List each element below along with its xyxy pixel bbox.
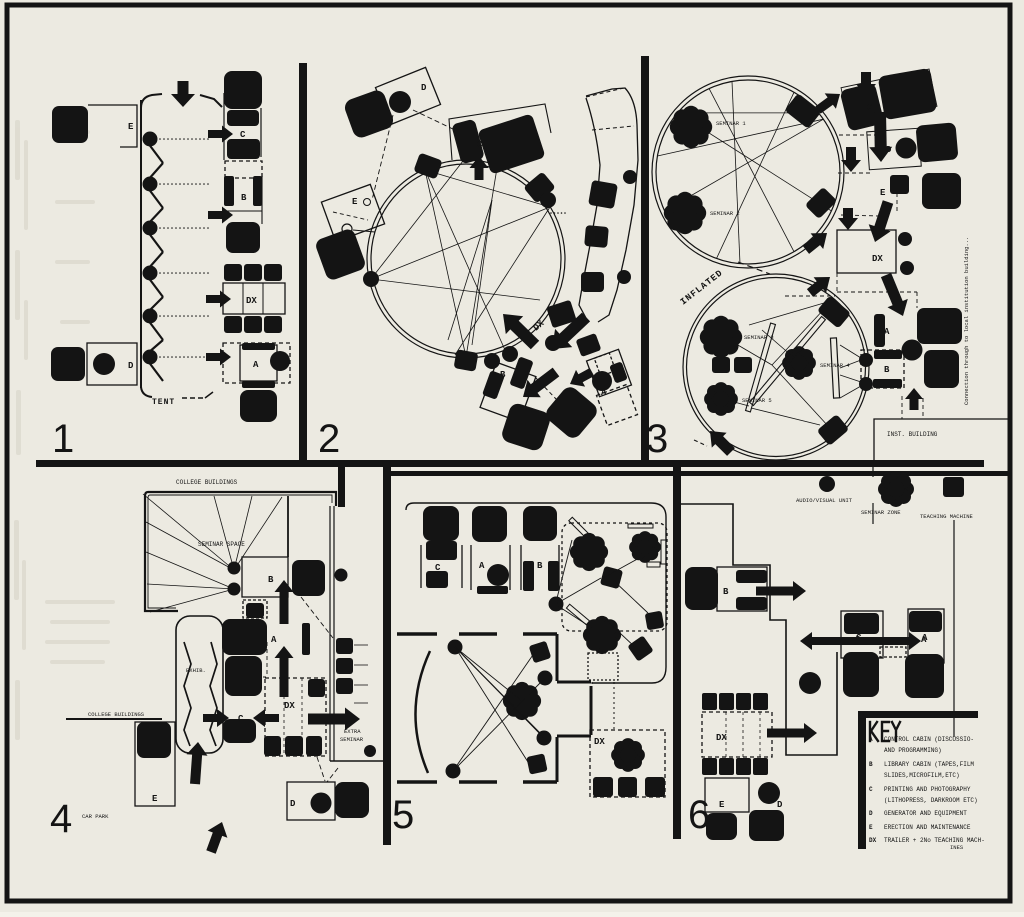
svg-text:SLIDES,MICROFILM,ETC): SLIDES,MICROFILM,ETC) bbox=[884, 772, 960, 779]
svg-text:DX: DX bbox=[246, 296, 257, 306]
svg-text:DX: DX bbox=[869, 837, 877, 844]
svg-text:CONTROL CABIN (DISCUSSIO-: CONTROL CABIN (DISCUSSIO- bbox=[884, 736, 974, 743]
svg-text:PRINTING AND PHOTOGRAPHY: PRINTING AND PHOTOGRAPHY bbox=[884, 786, 971, 793]
svg-text:SEMINAR 2: SEMINAR 2 bbox=[710, 210, 740, 217]
svg-text:SEMINAR 3: SEMINAR 3 bbox=[744, 334, 774, 341]
svg-text:C: C bbox=[238, 714, 244, 724]
svg-text:C: C bbox=[856, 633, 862, 643]
svg-text:B: B bbox=[537, 561, 543, 571]
svg-text:DX: DX bbox=[872, 254, 883, 264]
svg-text:B: B bbox=[884, 365, 890, 375]
svg-text:TENT: TENT bbox=[152, 398, 175, 407]
svg-text:E: E bbox=[128, 122, 134, 132]
svg-text:SEMINAR SPACE: SEMINAR SPACE bbox=[198, 541, 245, 548]
svg-text:A: A bbox=[922, 633, 928, 643]
svg-text:DX: DX bbox=[284, 701, 295, 711]
svg-text:A: A bbox=[884, 327, 890, 337]
svg-text:SEMINAR 1: SEMINAR 1 bbox=[716, 120, 746, 127]
svg-text:TRAILER + 2No TEACHING MACH-: TRAILER + 2No TEACHING MACH- bbox=[884, 837, 985, 844]
svg-text:D: D bbox=[869, 810, 873, 817]
svg-text:C: C bbox=[869, 786, 873, 793]
svg-text:INES: INES bbox=[950, 844, 964, 851]
svg-text:A: A bbox=[271, 635, 277, 645]
svg-text:E: E bbox=[352, 197, 358, 207]
svg-text:B: B bbox=[268, 575, 274, 585]
svg-text:D: D bbox=[886, 145, 892, 155]
svg-text:TEACHING MACHINE: TEACHING MACHINE bbox=[920, 513, 974, 520]
svg-text:ERECTION AND MAINTENANCE: ERECTION AND MAINTENANCE bbox=[884, 824, 971, 831]
svg-text:C: C bbox=[240, 130, 246, 140]
svg-text:D: D bbox=[421, 83, 427, 93]
svg-text:A: A bbox=[253, 360, 259, 370]
svg-text:B: B bbox=[723, 587, 729, 597]
svg-text:D: D bbox=[777, 800, 783, 810]
svg-text:LIBRARY CABIN (TAPES,FILM: LIBRARY CABIN (TAPES,FILM bbox=[884, 761, 974, 768]
svg-text:B: B bbox=[241, 193, 247, 203]
svg-text:C: C bbox=[867, 103, 873, 113]
svg-text:B: B bbox=[869, 761, 873, 768]
svg-text:SEMINAR ZONE: SEMINAR ZONE bbox=[861, 509, 901, 516]
svg-text:SEMINAR 5: SEMINAR 5 bbox=[742, 397, 772, 404]
svg-text:D: D bbox=[128, 361, 134, 371]
svg-text:SEMINAR: SEMINAR bbox=[340, 736, 364, 743]
svg-text:(LITHOPRESS, DARKROOM ETC): (LITHOPRESS, DARKROOM ETC) bbox=[884, 797, 978, 804]
svg-text:COLLEGE BUILDINGS: COLLEGE BUILDINGS bbox=[176, 479, 238, 486]
svg-text:1: 1 bbox=[52, 417, 74, 461]
svg-text:COLLEGE BUILDINGS: COLLEGE BUILDINGS bbox=[88, 711, 145, 718]
svg-text:GENERATOR AND EQUIPMENT: GENERATOR AND EQUIPMENT bbox=[884, 810, 967, 817]
svg-text:3: 3 bbox=[646, 417, 668, 461]
svg-text:E: E bbox=[719, 800, 725, 810]
svg-text:AUDIO/VISUAL UNIT: AUDIO/VISUAL UNIT bbox=[796, 497, 853, 504]
svg-text:4: 4 bbox=[50, 797, 72, 841]
svg-text:A: A bbox=[479, 561, 485, 571]
svg-text:AND PROGRAMMING): AND PROGRAMMING) bbox=[884, 747, 942, 754]
svg-text:INST. BUILDING: INST. BUILDING bbox=[887, 431, 938, 438]
svg-text:5: 5 bbox=[392, 793, 414, 837]
svg-text:DX: DX bbox=[716, 733, 727, 743]
svg-text:E: E bbox=[880, 188, 886, 198]
svg-text:2: 2 bbox=[318, 417, 340, 461]
svg-text:CAR PARK: CAR PARK bbox=[82, 813, 109, 820]
svg-text:E: E bbox=[869, 824, 873, 831]
svg-text:DX: DX bbox=[594, 737, 605, 747]
svg-text:E: E bbox=[152, 794, 158, 804]
svg-text:Connection through to local in: Connection through to local institution … bbox=[963, 237, 970, 405]
svg-text:A: A bbox=[869, 736, 873, 743]
svg-text:D: D bbox=[290, 799, 296, 809]
